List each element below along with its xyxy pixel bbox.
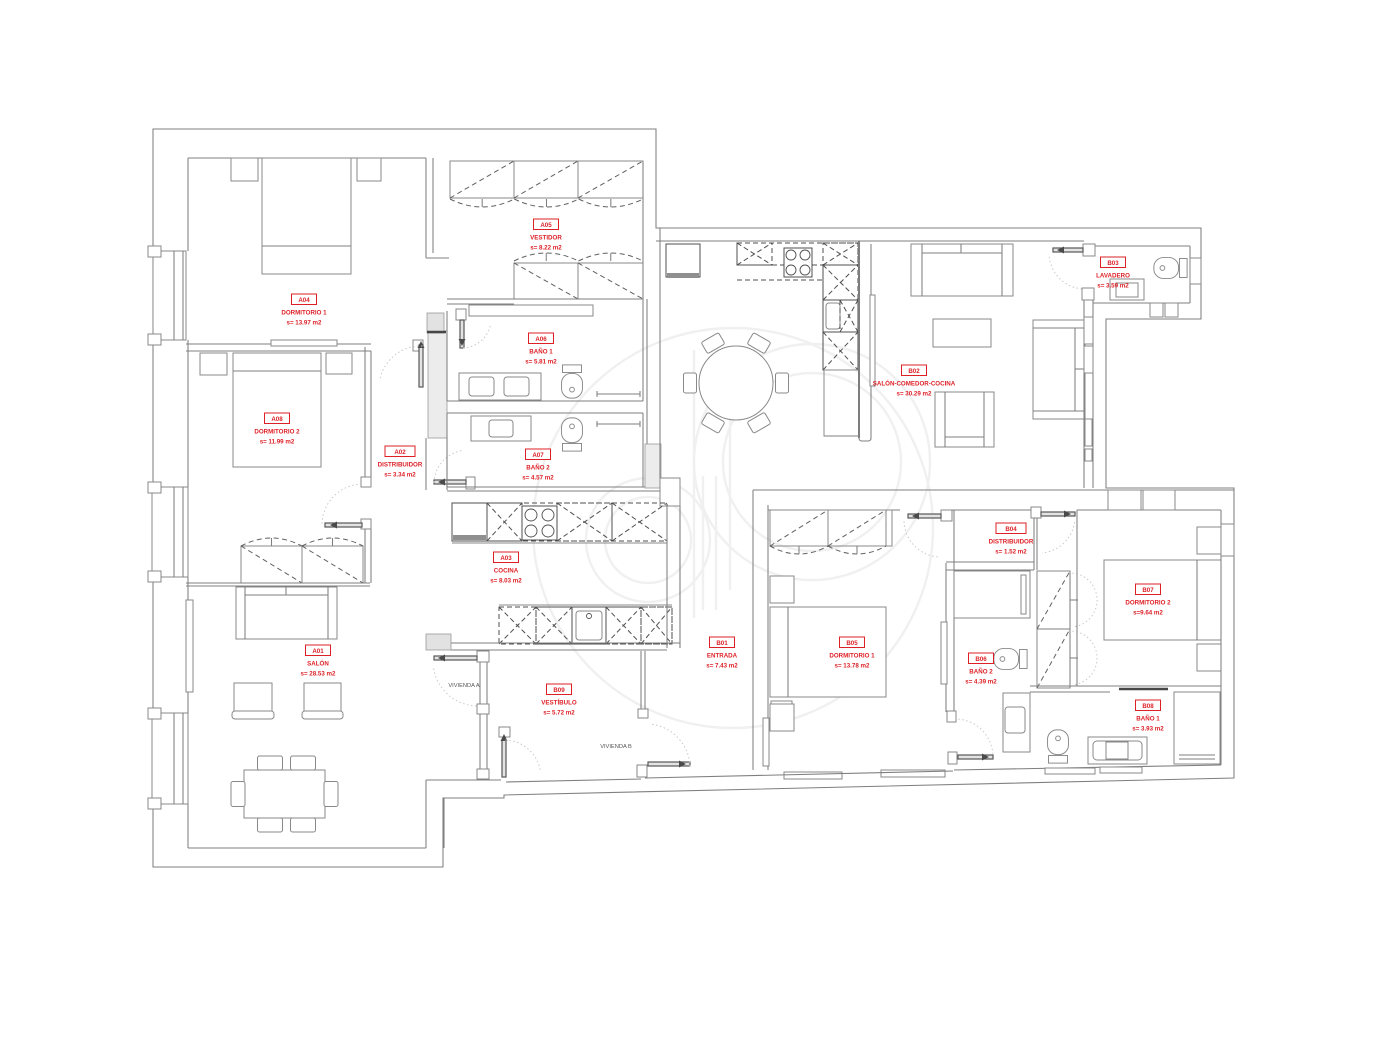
svg-text:s= 11.99 m2: s= 11.99 m2 <box>260 439 295 446</box>
svg-text:A04: A04 <box>298 297 310 304</box>
svg-text:B03: B03 <box>1107 260 1119 267</box>
svg-text:VESTIDOR: VESTIDOR <box>530 235 562 242</box>
svg-text:SALÓN: SALÓN <box>307 660 329 668</box>
svg-text:SALÓN-COMEDOR-COCINA: SALÓN-COMEDOR-COCINA <box>873 380 956 388</box>
svg-text:ENTRADA: ENTRADA <box>707 653 738 660</box>
svg-text:B05: B05 <box>846 640 858 647</box>
svg-text:s= 3.93 m2: s= 3.93 m2 <box>1132 726 1164 733</box>
svg-text:s= 13.78 m2: s= 13.78 m2 <box>835 663 870 670</box>
svg-text:LAVADERO: LAVADERO <box>1096 273 1130 280</box>
svg-text:s= 1.52 m2: s= 1.52 m2 <box>995 549 1027 556</box>
svg-text:s= 8.03 m2: s= 8.03 m2 <box>490 578 522 585</box>
svg-text:VESTÍBULO: VESTÍBULO <box>541 699 577 707</box>
svg-text:s= 8.22 m2: s= 8.22 m2 <box>530 245 562 252</box>
svg-text:DISTRIBUIDOR: DISTRIBUIDOR <box>989 539 1034 546</box>
svg-text:B08: B08 <box>1142 703 1154 710</box>
svg-text:B01: B01 <box>716 640 728 647</box>
svg-text:s= 5.81 m2: s= 5.81 m2 <box>525 359 557 366</box>
svg-text:VIVIENDA A: VIVIENDA A <box>448 683 480 689</box>
svg-text:s= 4.39 m2: s= 4.39 m2 <box>965 679 997 686</box>
svg-text:A03: A03 <box>500 555 512 562</box>
svg-text:A01: A01 <box>312 648 324 655</box>
svg-text:DORMITORIO 1: DORMITORIO 1 <box>281 310 327 317</box>
svg-text:A02: A02 <box>394 449 406 456</box>
svg-text:DORMITORIO 1: DORMITORIO 1 <box>829 653 875 660</box>
svg-text:BAÑO 1: BAÑO 1 <box>529 349 553 356</box>
svg-text:s=9.64 m2: s=9.64 m2 <box>1133 610 1163 617</box>
svg-text:B06: B06 <box>975 656 987 663</box>
svg-text:DORMITORIO 2: DORMITORIO 2 <box>1125 600 1171 607</box>
svg-text:COCINA: COCINA <box>494 568 519 575</box>
svg-text:s= 7.43 m2: s= 7.43 m2 <box>706 663 738 670</box>
svg-text:A07: A07 <box>532 452 544 459</box>
svg-text:B09: B09 <box>553 687 565 694</box>
svg-text:B04: B04 <box>1005 526 1017 533</box>
svg-text:B07: B07 <box>1142 587 1154 594</box>
svg-text:A06: A06 <box>535 336 547 343</box>
svg-text:BAÑO 1: BAÑO 1 <box>1136 716 1160 723</box>
svg-text:DISTRIBUIDOR: DISTRIBUIDOR <box>378 462 423 469</box>
svg-text:s= 28.53 m2: s= 28.53 m2 <box>301 671 336 678</box>
svg-text:B02: B02 <box>908 368 920 375</box>
svg-text:BAÑO 2: BAÑO 2 <box>969 669 993 676</box>
svg-text:s= 30.29 m2: s= 30.29 m2 <box>897 391 932 398</box>
svg-text:A08: A08 <box>271 416 283 423</box>
svg-text:s= 13.97 m2: s= 13.97 m2 <box>287 320 322 327</box>
svg-text:s= 5.72 m2: s= 5.72 m2 <box>543 710 575 717</box>
svg-text:A05: A05 <box>540 222 552 229</box>
svg-text:VIVIENDA B: VIVIENDA B <box>600 744 632 750</box>
svg-text:BAÑO 2: BAÑO 2 <box>526 465 550 472</box>
svg-text:DORMITORIO 2: DORMITORIO 2 <box>254 429 300 436</box>
svg-text:s= 4.57 m2: s= 4.57 m2 <box>522 475 554 482</box>
svg-text:s= 3.34 m2: s= 3.34 m2 <box>384 472 416 479</box>
svg-text:s= 3.59 m2: s= 3.59 m2 <box>1097 283 1129 290</box>
